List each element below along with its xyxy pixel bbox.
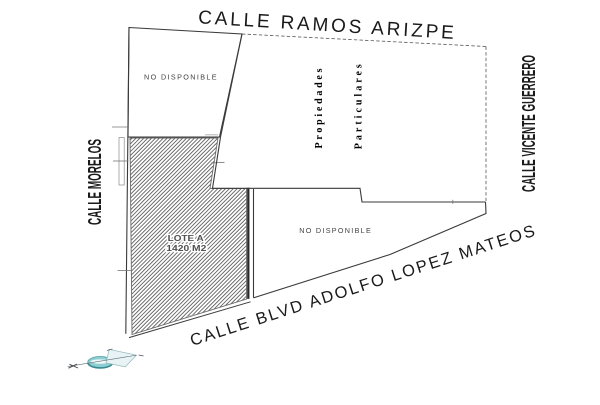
svg-text:CALLE MORELOS: CALLE MORELOS bbox=[84, 139, 105, 225]
svg-text:CALLE VICENTE GUERRERO: CALLE VICENTE GUERRERO bbox=[518, 55, 539, 192]
svg-text:Propiedades: Propiedades bbox=[314, 68, 325, 148]
svg-text:LOTE A: LOTE A bbox=[168, 234, 204, 243]
svg-text:NO DISPONIBLE: NO DISPONIBLE bbox=[144, 73, 217, 82]
svg-text:NO DISPONIBLE: NO DISPONIBLE bbox=[299, 226, 371, 235]
svg-text:1420 M2: 1420 M2 bbox=[166, 244, 207, 253]
